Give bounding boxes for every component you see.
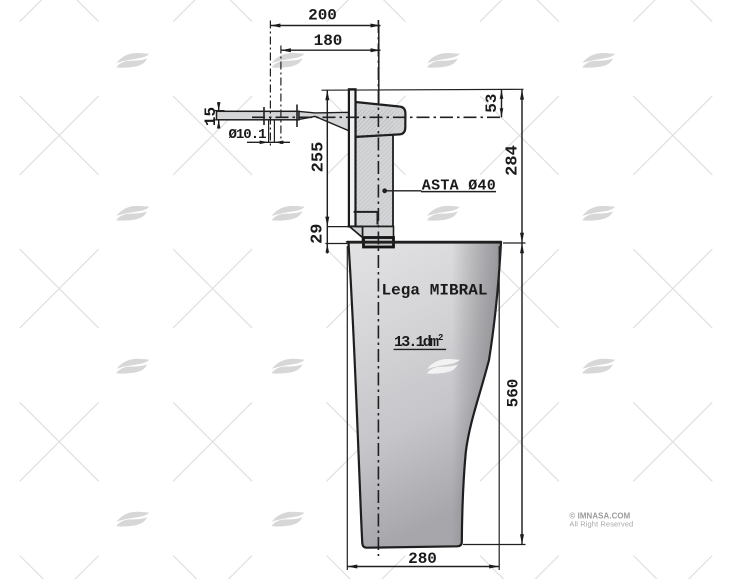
svg-text:200: 200: [308, 7, 337, 25]
svg-text:ASTA Ø40: ASTA Ø40: [422, 178, 496, 195]
svg-text:13.1dm: 13.1dm: [394, 334, 439, 351]
svg-text:180: 180: [314, 32, 343, 50]
svg-text:Ø10.1: Ø10.1: [229, 127, 267, 143]
svg-text:53: 53: [483, 94, 501, 113]
svg-text:15: 15: [202, 107, 220, 126]
svg-text:Lega MIBRAL: Lega MIBRAL: [382, 282, 488, 300]
svg-text:255: 255: [310, 142, 329, 173]
svg-text:2: 2: [438, 333, 443, 343]
svg-text:560: 560: [505, 379, 523, 408]
svg-text:29: 29: [308, 223, 327, 243]
svg-text:284: 284: [504, 145, 523, 176]
svg-text:All Right Reserved: All Right Reserved: [569, 520, 633, 529]
svg-text:280: 280: [408, 550, 437, 568]
